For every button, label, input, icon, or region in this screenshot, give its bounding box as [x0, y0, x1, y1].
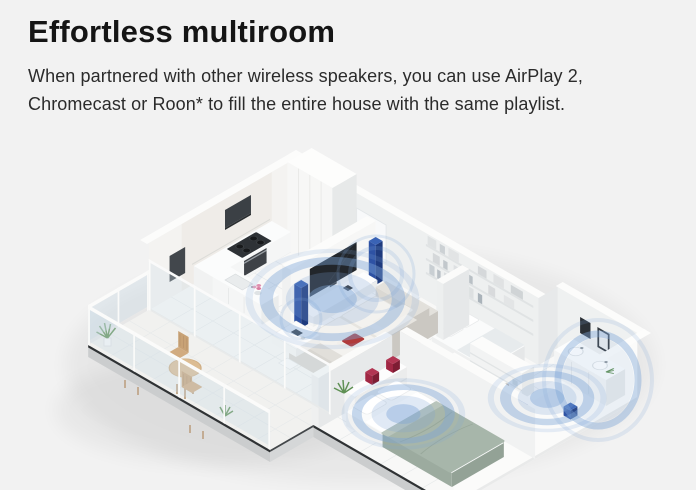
marketing-section: Effortless multiroom When partnered with…: [0, 0, 696, 490]
section-body: When partnered with other wireless speak…: [28, 62, 668, 118]
body-line-2: Chromecast or Roon* to fill the entire h…: [28, 94, 565, 114]
apartment-illustration: [0, 130, 696, 490]
section-heading: Effortless multiroom: [28, 14, 668, 50]
body-line-1: When partnered with other wireless speak…: [28, 66, 583, 86]
section-copy: Effortless multiroom When partnered with…: [28, 14, 668, 118]
